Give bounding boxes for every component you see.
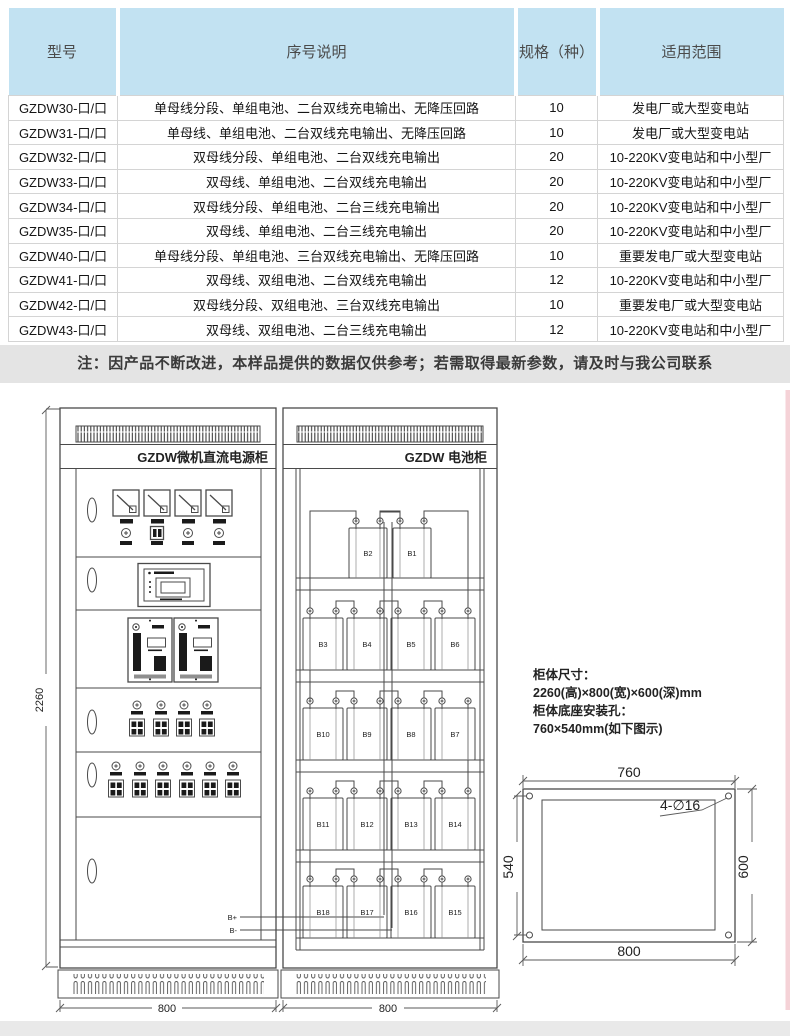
battery-label: B6 [450, 640, 459, 649]
base-vents [294, 974, 486, 994]
battery: B11 [303, 788, 343, 850]
model-cell: GZDW43-口/口 [9, 317, 118, 342]
model-cell: GZDW32-口/口 [9, 145, 118, 170]
base-outline-outer [523, 789, 735, 942]
spec-cell: 10 [516, 96, 598, 121]
table-row: GZDW33-口/口双母线、单组电池、二台双线充电输出2010-220KV变电站… [9, 169, 784, 194]
specs-line-1: 柜体尺寸： [532, 667, 596, 682]
battery: B15 [435, 876, 475, 938]
charger-modules [128, 618, 218, 682]
col-header-desc: 序号说明 [118, 8, 516, 96]
desc-cell: 单母线分段、单组电池、三台双线充电输出、无降压回路 [118, 243, 516, 268]
spec-cell: 12 [516, 268, 598, 293]
specs-line-2: 2260(高)×800(宽)×600(深)mm [533, 685, 702, 700]
desc-cell: 双母线、单组电池、二台三线充电输出 [118, 218, 516, 243]
battery-label: B12 [360, 820, 373, 829]
battery: B1 [393, 518, 431, 578]
battery-jumper [336, 601, 354, 608]
battery-label: B11 [317, 820, 330, 829]
power-width-dimension: 800 [56, 1000, 280, 1015]
desc-cell: 双母线分段、双组电池、三台双线充电输出 [118, 292, 516, 317]
breaker-unit [226, 762, 241, 797]
battery-jumper [380, 781, 398, 788]
spec-cell: 20 [516, 194, 598, 219]
table-header-row: 型号 序号说明 规格（种） 适用范围 [9, 8, 784, 96]
spec-cell: 10 [516, 120, 598, 145]
range-cell: 发电厂或大型变电站 [598, 96, 784, 121]
battery-jumper [424, 869, 442, 876]
table-row: GZDW42-口/口双母线分段、双组电池、三台双线充电输出10重要发电厂或大型变… [9, 292, 784, 317]
battery-jumper [424, 691, 442, 698]
breaker-unit [156, 762, 171, 797]
battery-jumper [336, 869, 354, 876]
table-row: GZDW32-口/口双母线分段、单组电池、二台双线充电输出2010-220KV变… [9, 145, 784, 170]
desc-cell: 双母线分段、单组电池、二台三线充电输出 [118, 194, 516, 219]
base-bottom-dim: 800 [617, 943, 641, 959]
battery: B5 [391, 608, 431, 670]
battery-label: B3 [318, 640, 327, 649]
battery-jumper [380, 869, 398, 876]
battery-label: B15 [448, 908, 461, 917]
range-cell: 10-220KV变电站和中小型厂 [598, 145, 784, 170]
table-row: GZDW43-口/口双母线、双组电池、二台三线充电输出1210-220KV变电站… [9, 317, 784, 342]
battery: B16 [391, 876, 431, 938]
battery-cabinet: GZDW 电池柜 B2B1B3B4B5B6B10B9B8B7B11B12B13B… [279, 408, 501, 1015]
battery: B8 [391, 698, 431, 760]
battery-jumper [336, 691, 354, 698]
base-top-dim: 760 [617, 764, 641, 780]
desc-cell: 双母线、双组电池、二台双线充电输出 [118, 268, 516, 293]
mounting-holes [527, 793, 732, 938]
holes-callout-label: 4-∅16 [660, 797, 700, 813]
battery: B13 [391, 788, 431, 850]
battery-jumper [336, 781, 354, 788]
desc-cell: 单母线分段、单组电池、二台双线充电输出、无降压回路 [118, 96, 516, 121]
table-row: GZDW30-口/口单母线分段、单组电池、二台双线充电输出、无降压回路10发电厂… [9, 96, 784, 121]
breaker-row-4 [130, 701, 215, 736]
scan-edge-artifact [786, 390, 790, 1010]
breaker-unit [109, 762, 124, 797]
battery-width-label: 800 [379, 1003, 397, 1015]
battery-jumper [424, 781, 442, 788]
height-dim-label: 2260 [34, 688, 46, 712]
model-cell: GZDW35-口/口 [9, 218, 118, 243]
spec-cell: 10 [516, 243, 598, 268]
range-cell: 10-220KV变电站和中小型厂 [598, 194, 784, 219]
model-cell: GZDW33-口/口 [9, 169, 118, 194]
bottom-gray-strip [0, 1021, 790, 1036]
base-right-dim: 600 [735, 855, 751, 879]
battery-shelves: B2B1B3B4B5B6B10B9B8B7B11B12B13B14B18B17B… [303, 511, 475, 938]
technical-drawing: 2260 GZDW微机直流电源柜 [0, 383, 790, 1036]
battery-label: B9 [362, 730, 371, 739]
col-header-range: 适用范围 [598, 8, 784, 96]
battery-cabinet-title: GZDW 电池柜 [405, 450, 487, 465]
battery-label: B17 [360, 908, 373, 917]
battery-label: B4 [362, 640, 371, 649]
base-outline-inner [542, 800, 715, 930]
table-row: GZDW41-口/口双母线、双组电池、二台双线充电输出1210-220KV变电站… [9, 268, 784, 293]
desc-cell: 双母线分段、单组电池、二台双线充电输出 [118, 145, 516, 170]
base-vents [72, 974, 264, 994]
spec-cell: 20 [516, 145, 598, 170]
range-cell: 10-220KV变电站和中小型厂 [598, 317, 784, 342]
specs-text: 柜体尺寸： 2260(高)×800(宽)×600(深)mm 柜体底座安装孔： 7… [532, 667, 702, 736]
model-cell: GZDW42-口/口 [9, 292, 118, 317]
range-cell: 重要发电厂或大型变电站 [598, 292, 784, 317]
table-row: GZDW35-口/口双母线、单组电池、二台三线充电输出2010-220KV变电站… [9, 218, 784, 243]
desc-cell: 双母线、单组电池、二台双线充电输出 [118, 169, 516, 194]
catalog-page: 型号 序号说明 规格（种） 适用范围 GZDW30-口/口单母线分段、单组电池、… [0, 0, 790, 1036]
battery: B4 [347, 608, 387, 670]
power-width-label: 800 [158, 1003, 176, 1015]
indicator-row [120, 527, 225, 546]
breaker-unit [130, 701, 145, 736]
col-header-model: 型号 [9, 8, 118, 96]
panel-meters [113, 490, 232, 524]
battery-label: B14 [448, 820, 461, 829]
breaker-unit [180, 762, 195, 797]
range-cell: 发电厂或大型变电站 [598, 120, 784, 145]
breaker-row-6 [109, 762, 241, 797]
battery: B6 [435, 608, 475, 670]
model-cell: GZDW34-口/口 [9, 194, 118, 219]
range-cell: 10-220KV变电站和中小型厂 [598, 268, 784, 293]
model-cell: GZDW41-口/口 [9, 268, 118, 293]
battery: B2 [349, 518, 387, 578]
battery-jumper [380, 691, 398, 698]
breaker-unit [133, 762, 148, 797]
battery: B7 [435, 698, 475, 760]
height-dimension: 2260 [34, 406, 60, 970]
spec-table-wrap: 型号 序号说明 规格（种） 适用范围 GZDW30-口/口单母线分段、单组电池、… [8, 8, 783, 342]
desc-cell: 双母线、双组电池、二台三线充电输出 [118, 317, 516, 342]
battery-label: B7 [450, 730, 459, 739]
specs-line-4: 760×540mm(如下图示) [533, 721, 663, 736]
battery: B17 [347, 876, 387, 938]
base-hole-diagram: 760 800 540 600 4-∅16 [500, 764, 757, 966]
bplus-label: B+ [228, 913, 238, 922]
battery-wiring [310, 511, 468, 928]
breaker-unit [200, 701, 215, 736]
spec-table: 型号 序号说明 规格（种） 适用范围 GZDW30-口/口单母线分段、单组电池、… [8, 8, 784, 342]
base-left-dim: 540 [500, 855, 516, 879]
battery-label: B18 [316, 908, 329, 917]
battery-jumper [380, 601, 398, 608]
battery-jumper [424, 601, 442, 608]
door-handles [88, 498, 97, 883]
battery: B18 [303, 876, 343, 938]
col-header-spec: 规格（种） [516, 8, 598, 96]
breaker-unit [177, 701, 192, 736]
bminus-label: B- [230, 926, 238, 935]
desc-cell: 单母线、单组电池、二台双线充电输出、无降压回路 [118, 120, 516, 145]
battery-width-dimension: 800 [279, 1000, 501, 1015]
battery: B10 [303, 698, 343, 760]
vent-grille [76, 426, 260, 442]
spec-cell: 10 [516, 292, 598, 317]
battery: B12 [347, 788, 387, 850]
battery: B14 [435, 788, 475, 850]
spec-cell: 20 [516, 169, 598, 194]
model-cell: GZDW30-口/口 [9, 96, 118, 121]
specs-line-3: 柜体底座安装孔： [532, 703, 633, 718]
model-cell: GZDW31-口/口 [9, 120, 118, 145]
range-cell: 10-220KV变电站和中小型厂 [598, 218, 784, 243]
breaker-unit [154, 701, 169, 736]
battery-label: B8 [406, 730, 415, 739]
range-cell: 重要发电厂或大型变电站 [598, 243, 784, 268]
spec-cell: 12 [516, 317, 598, 342]
monitor-module [138, 564, 210, 607]
breaker-unit [203, 762, 218, 797]
table-row: GZDW40-口/口单母线分段、单组电池、三台双线充电输出、无降压回路10重要发… [9, 243, 784, 268]
battery-label: B5 [406, 640, 415, 649]
vent-grille [297, 426, 483, 442]
power-cabinet: 2260 GZDW微机直流电源柜 [34, 406, 392, 1015]
battery: B3 [303, 608, 343, 670]
spec-cell: 20 [516, 218, 598, 243]
table-row: GZDW34-口/口双母线分段、单组电池、二台三线充电输出2010-220KV变… [9, 194, 784, 219]
model-cell: GZDW40-口/口 [9, 243, 118, 268]
battery-label: B1 [407, 549, 416, 558]
battery-cabinet-frame [283, 408, 497, 968]
battery-label: B10 [316, 730, 329, 739]
note-bar: 注：因产品不断改进，本样品提供的数据仅供参考；若需取得最新参数，请及时与我公司联… [0, 345, 790, 383]
range-cell: 10-220KV变电站和中小型厂 [598, 169, 784, 194]
battery-label: B2 [363, 549, 372, 558]
battery-label: B13 [404, 820, 417, 829]
battery: B9 [347, 698, 387, 760]
power-cabinet-title: GZDW微机直流电源柜 [137, 450, 268, 465]
battery-label: B16 [404, 908, 417, 917]
table-row: GZDW31-口/口单母线、单组电池、二台双线充电输出、无降压回路10发电厂或大… [9, 120, 784, 145]
